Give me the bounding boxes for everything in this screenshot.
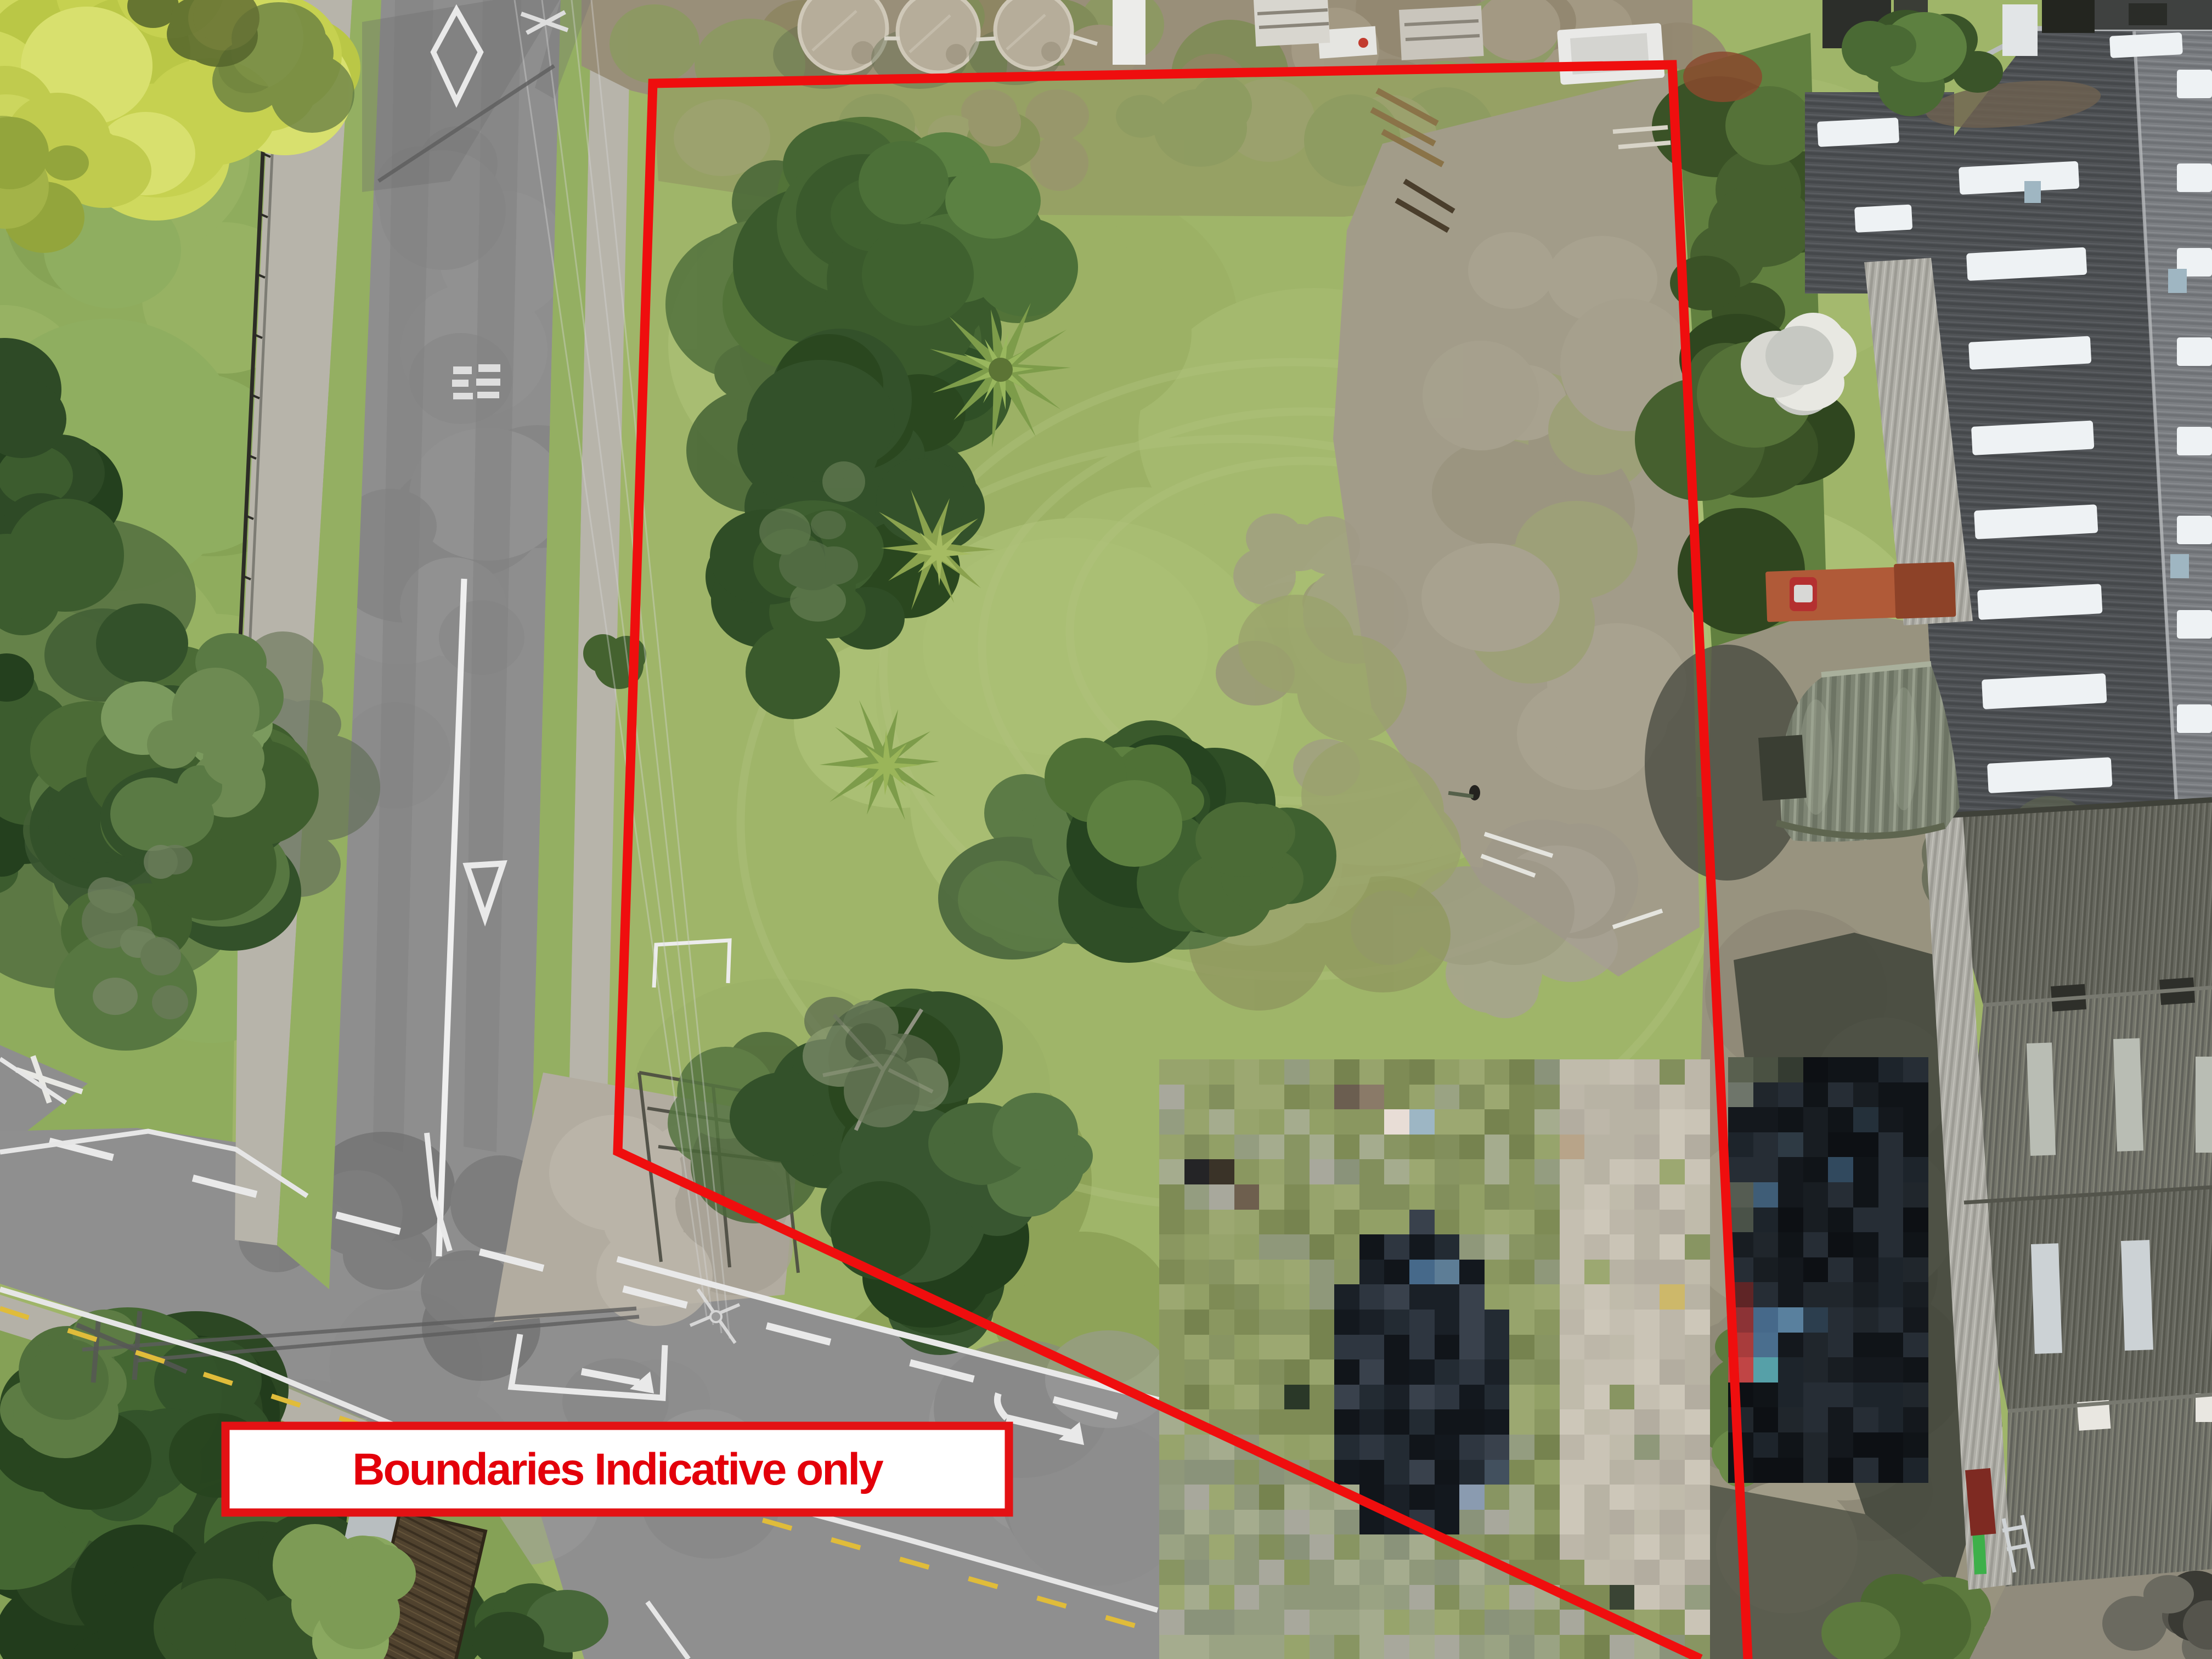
svg-text:Boundaries Indicative only: Boundaries Indicative only <box>352 1444 884 1494</box>
